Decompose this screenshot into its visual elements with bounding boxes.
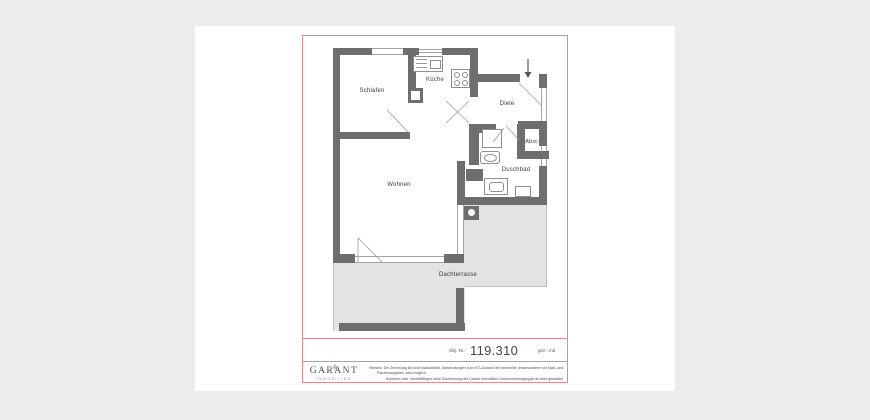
- plan-frame-border: Schlafen Küche Diele Abst. Duschbad Wohn…: [302, 35, 568, 383]
- logo-subtext: IMMOBILIEN: [308, 377, 360, 381]
- disclaimer-line-3: Kopieren oder Vervielfältigen ohne Zusti…: [369, 377, 566, 382]
- entrance-arrow-icon: [525, 59, 532, 78]
- room-label-dachterrasse: Dachterrasse: [439, 272, 477, 278]
- document-page: Schlafen Küche Diele Abst. Duschbad Wohn…: [195, 26, 675, 391]
- floor-plan: Schlafen Küche Diele Abst. Duschbad Wohn…: [303, 36, 567, 338]
- footer-row: GARANT IMMOBILIEN Hinweis: Die Zeichnung…: [303, 361, 567, 382]
- room-label-wohnen: Wohnen: [387, 182, 410, 188]
- canvas: { "page": { "background_color": "#ececec…: [0, 0, 870, 420]
- room-label-schlafen: Schlafen: [360, 88, 385, 94]
- garant-logo: GARANT IMMOBILIEN: [308, 366, 360, 381]
- room-label-diele: Diele: [500, 101, 515, 107]
- room-label-abst: Abst.: [525, 139, 539, 145]
- title-block-row: Obj.-Nr.: 119.310 gez.: md: [303, 338, 567, 361]
- drawn-by-note: gez.: md: [538, 348, 555, 353]
- object-number-value: 119.310: [470, 343, 518, 358]
- room-label-duschbad: Duschbad: [502, 167, 531, 173]
- disclaimer-text: Hinweis: Die Zeichnung ist nicht maßstäb…: [369, 366, 566, 382]
- room-label-kueche: Küche: [426, 77, 444, 83]
- object-number-label: Obj.-Nr.:: [449, 348, 466, 353]
